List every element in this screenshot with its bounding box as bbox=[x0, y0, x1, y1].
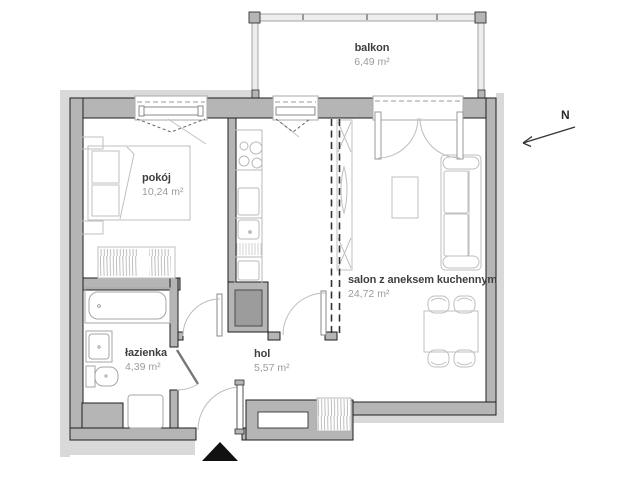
stove bbox=[239, 142, 262, 168]
balcony-post bbox=[475, 12, 486, 23]
door-leaf bbox=[457, 112, 463, 159]
balcony-post bbox=[249, 12, 260, 23]
bedroom-furniture bbox=[82, 137, 190, 278]
nightstand bbox=[82, 221, 103, 234]
compass-arrow bbox=[523, 127, 575, 147]
compass-north-label: N bbox=[561, 108, 570, 122]
pillow bbox=[92, 151, 119, 183]
windows bbox=[135, 96, 463, 159]
pillow bbox=[92, 185, 119, 216]
dining-chairs bbox=[428, 296, 475, 367]
entrance-door-leaf bbox=[237, 383, 243, 430]
washbasin bbox=[86, 331, 112, 362]
balcony-french-door bbox=[373, 96, 463, 159]
living-room-door bbox=[283, 291, 326, 335]
door-leaf bbox=[375, 112, 381, 159]
kitchen-window bbox=[273, 96, 318, 137]
kitchen-sink bbox=[238, 220, 259, 239]
kitchen-cabinet bbox=[238, 261, 259, 280]
bedroom-window bbox=[135, 96, 207, 144]
bathroom-shaft bbox=[82, 403, 123, 428]
duvet-fold bbox=[120, 147, 134, 219]
entrance-marker-triangle bbox=[202, 442, 238, 461]
kitchen-shaft-duct bbox=[235, 290, 262, 326]
sink-drainer bbox=[237, 243, 261, 255]
bathroom-door bbox=[177, 350, 198, 390]
floor-plan: balkon 6,49 m² pokój 10,24 m² salon z an… bbox=[0, 0, 640, 480]
tv bbox=[341, 167, 347, 213]
kitchen-fixtures bbox=[235, 130, 262, 283]
toilet-tank bbox=[86, 366, 95, 387]
bedroom-door bbox=[183, 294, 222, 336]
dining-table bbox=[424, 311, 478, 352]
washing-machine bbox=[128, 395, 163, 428]
balcony-structure bbox=[249, 12, 486, 99]
hall-cabinet bbox=[258, 412, 308, 428]
floor-plan-drawing bbox=[0, 0, 640, 480]
entrance-door bbox=[198, 380, 244, 434]
sofa bbox=[441, 155, 481, 270]
kitchen-counter bbox=[235, 130, 262, 283]
coffee-table bbox=[392, 177, 418, 218]
kitchen-cabinet bbox=[238, 188, 259, 215]
nightstand bbox=[82, 137, 103, 149]
